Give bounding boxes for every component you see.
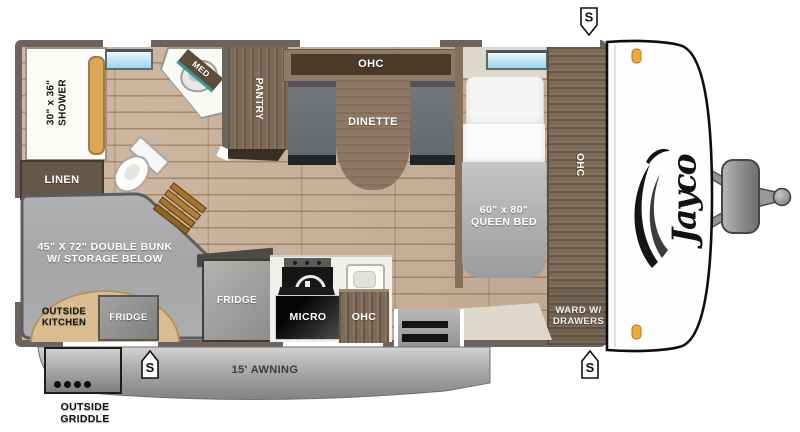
queen-bed: 60" x 80" QUEEN BED (462, 162, 546, 278)
svg-text:S: S (586, 360, 595, 375)
pantry-cabinet: PANTRY (228, 47, 288, 150)
outside-griddle (44, 347, 122, 394)
speaker-badge-awning: S (140, 350, 160, 379)
dinette-ohc-inner: OHC (291, 54, 451, 75)
bed-pillow (466, 76, 544, 130)
awning-label: 15' AWNING (200, 364, 330, 377)
kitchen-fridge-label: FRIDGE (217, 295, 257, 307)
shower-label: 30" x 36" SHOWER (46, 53, 69, 153)
kitchen-ohc-cabinet: OHC (339, 289, 389, 343)
rv-floorplan: 30" x 36" SHOWER MED LINEN PANTRY OHC (0, 0, 800, 432)
bed-sheet (463, 124, 545, 166)
linen-label: LINEN (45, 174, 80, 187)
bed-window-opening (482, 40, 600, 47)
kitchen-ohc-label: OHC (352, 311, 377, 323)
dinette-ohc-label: OHC (358, 58, 384, 71)
toilet-bowl-inner (121, 161, 143, 183)
outside-fridge: FRIDGE (98, 295, 159, 341)
kitchen-fridge: FRIDGE (202, 259, 272, 342)
bed-window (486, 50, 548, 70)
jayco-logo-text: Jayco (665, 155, 704, 243)
bath-window-opening (103, 40, 151, 47)
microwave-label: MICRO (290, 311, 327, 323)
cooktop-cover (278, 287, 335, 295)
queen-bed-label: 60" x 80" QUEEN BED (454, 204, 554, 229)
pantry-label: PANTRY (252, 59, 264, 139)
jayco-logo: Jayco (652, 128, 716, 270)
entry-floor (455, 303, 552, 340)
microwave: MICRO (275, 295, 341, 340)
dinette-bench-base-left (288, 155, 336, 165)
dinette-bench-base-right (410, 155, 458, 165)
cooktop (282, 267, 333, 287)
dinette-ohc-cabinet: OHC (283, 49, 461, 82)
outside-kitchen-label: OUTSIDE KITCHEN (36, 307, 92, 329)
bath-window (105, 49, 153, 70)
svg-text:S: S (585, 10, 594, 25)
shower-door (88, 56, 105, 155)
stove-knob-panel (284, 258, 331, 267)
svg-text:S: S (146, 360, 155, 375)
dinette-label: DINETTE (328, 116, 418, 129)
outside-fridge-label: FRIDGE (109, 312, 147, 323)
dinette-window-opening (300, 40, 440, 47)
outside-griddle-label: OUTSIDE GRIDDLE (46, 401, 124, 425)
bunk-label: 45" X 72" DOUBLE BUNK W/ STORAGE BELOW (25, 241, 185, 266)
bedside-ohc-label: OHC (573, 143, 585, 187)
dinette-table: DINETTE (336, 80, 410, 190)
